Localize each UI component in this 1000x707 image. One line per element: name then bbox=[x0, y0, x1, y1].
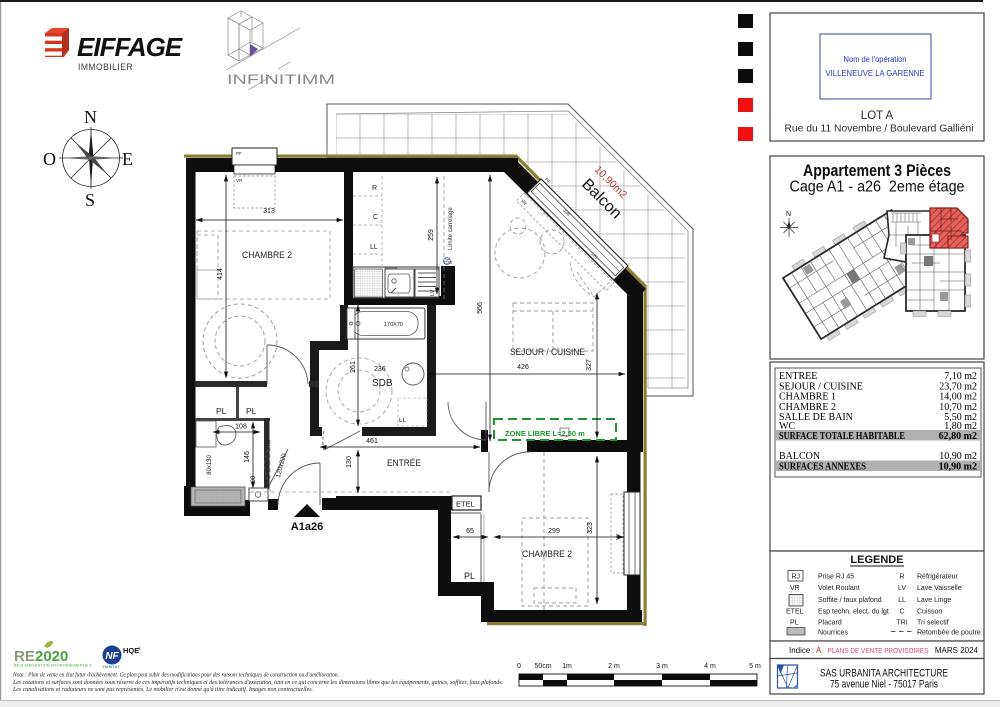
svg-text:HQE: HQE bbox=[123, 646, 139, 655]
svg-text:Cage A1 - a26 2eme étage: Cage A1 - a26 2eme étage bbox=[790, 179, 965, 196]
svg-text:Rue du 11 Novembre / Boulevard: Rue du 11 Novembre / Boulevard Galliéni bbox=[785, 124, 974, 135]
svg-text:Indice: Indice bbox=[789, 646, 811, 655]
svg-text:Nota : Plan de vente en état f: Nota : Plan de vente en état futur d'ach… bbox=[12, 672, 339, 679]
svg-text:LV: LV bbox=[898, 585, 906, 592]
svg-text:Placard: Placard bbox=[818, 620, 842, 627]
svg-text:130: 130 bbox=[346, 456, 353, 468]
svg-text:VILLENEUVE LA GARENNE: VILLENEUVE LA GARENNE bbox=[826, 68, 925, 78]
svg-text:Esp techn. elect. du lgt: Esp techn. elect. du lgt bbox=[818, 609, 889, 616]
svg-text:VR: VR bbox=[236, 178, 243, 183]
svg-text:Réfrigérateur: Réfrigérateur bbox=[917, 574, 959, 581]
svg-text:Cuisson: Cuisson bbox=[917, 609, 942, 616]
svg-text:MARS 2024: MARS 2024 bbox=[935, 646, 979, 655]
svg-text:LOT A: LOT A bbox=[861, 110, 894, 122]
svg-text:VR: VR bbox=[615, 533, 620, 540]
svg-text:Lave Linge: Lave Linge bbox=[917, 597, 951, 604]
svg-text:Volet Roulant: Volet Roulant bbox=[818, 585, 860, 592]
svg-text:10,90 m2: 10,90 m2 bbox=[939, 451, 977, 462]
svg-text:VR: VR bbox=[790, 585, 800, 592]
svg-text:LL: LL bbox=[399, 417, 407, 424]
svg-text:323: 323 bbox=[587, 522, 594, 534]
svg-text:426: 426 bbox=[517, 364, 529, 371]
svg-text:®: ® bbox=[138, 646, 141, 651]
svg-text:Prise RJ 45: Prise RJ 45 bbox=[818, 574, 854, 581]
svg-text:Retombée de poutre: Retombée de poutre bbox=[917, 630, 981, 637]
svg-text:R: R bbox=[372, 185, 377, 192]
svg-text:NF: NF bbox=[105, 651, 119, 662]
svg-text:C30: C30 bbox=[444, 260, 453, 265]
svg-text:Nom de l'opération: Nom de l'opération bbox=[844, 55, 907, 64]
svg-text:236: 236 bbox=[374, 366, 386, 373]
svg-text:Appartement 3 Pièces: Appartement 3 Pièces bbox=[803, 161, 951, 180]
svg-text:259: 259 bbox=[428, 229, 435, 241]
svg-text:LL: LL bbox=[898, 597, 906, 604]
svg-text:SURFACES ANNEXES: SURFACES ANNEXES bbox=[779, 462, 866, 473]
svg-text:E: E bbox=[122, 149, 133, 169]
svg-text:ETEL: ETEL bbox=[456, 500, 475, 509]
svg-text:: A: : A bbox=[812, 646, 822, 655]
svg-text:LL: LL bbox=[370, 244, 378, 251]
svg-text:RE: RE bbox=[14, 648, 35, 665]
svg-text:Tri selectif: Tri selectif bbox=[917, 620, 949, 627]
svg-text:0: 0 bbox=[517, 663, 521, 670]
svg-text:50cm: 50cm bbox=[534, 663, 551, 670]
svg-text:LV: LV bbox=[430, 289, 436, 296]
svg-text:Lave Vaisselle: Lave Vaisselle bbox=[917, 585, 962, 592]
svg-text:4 m: 4 m bbox=[704, 663, 716, 670]
svg-text:CHAMBRE 2: CHAMBRE 2 bbox=[522, 549, 572, 560]
svg-text:C: C bbox=[899, 609, 904, 616]
svg-text:LEGENDE: LEGENDE bbox=[850, 554, 903, 566]
svg-text:313: 313 bbox=[263, 208, 275, 215]
svg-text:327: 327 bbox=[586, 359, 593, 371]
svg-text:PL: PL bbox=[464, 571, 475, 581]
svg-text:PLANS DE VENTE PROVISOIRES: PLANS DE VENTE PROVISOIRES bbox=[828, 646, 929, 655]
svg-text:PL: PL bbox=[790, 620, 799, 627]
svg-text:2 m: 2 m bbox=[608, 663, 620, 670]
svg-text:2020: 2020 bbox=[35, 648, 68, 665]
svg-text:ENTRÉE: ENTRÉE bbox=[387, 458, 421, 469]
svg-text:Les cotations et surfaces sont: Les cotations et surfaces sont données s… bbox=[12, 679, 503, 686]
svg-text:IMMOBILIER: IMMOBILIER bbox=[78, 62, 133, 73]
svg-text:HABITAT: HABITAT bbox=[103, 665, 120, 669]
svg-text:BALCON: BALCON bbox=[779, 451, 820, 462]
svg-text:299: 299 bbox=[548, 528, 560, 535]
svg-text:Soffite / faux plafond: Soffite / faux plafond bbox=[818, 597, 882, 604]
svg-text:Nourrices: Nourrices bbox=[818, 630, 848, 637]
svg-text:SURFACE TOTALE HABITABLE: SURFACE TOTALE HABITABLE bbox=[779, 431, 905, 442]
svg-text:108: 108 bbox=[235, 424, 247, 431]
svg-text:O: O bbox=[43, 149, 56, 169]
svg-text:170X70: 170X70 bbox=[384, 322, 403, 328]
svg-text:S: S bbox=[85, 190, 95, 210]
svg-text:SEJOUR / CUISINE: SEJOUR / CUISINE bbox=[510, 347, 585, 358]
svg-text:261: 261 bbox=[350, 361, 357, 373]
svg-text:CHAMBRE 2: CHAMBRE 2 bbox=[242, 250, 292, 261]
svg-text:A1a26: A1a26 bbox=[291, 521, 323, 533]
svg-text:146: 146 bbox=[244, 451, 251, 463]
svg-text:C: C bbox=[373, 214, 378, 221]
svg-text:414: 414 bbox=[217, 268, 224, 280]
svg-text:65: 65 bbox=[466, 528, 474, 535]
svg-text:90: 90 bbox=[251, 475, 257, 482]
svg-text:Limite carrelage: Limite carrelage bbox=[448, 207, 454, 250]
svg-text:RJ: RJ bbox=[792, 574, 801, 581]
svg-text:80x130: 80x130 bbox=[207, 454, 213, 474]
svg-text:5 m: 5 m bbox=[749, 663, 761, 670]
svg-text:R: R bbox=[899, 574, 904, 581]
svg-text:N: N bbox=[84, 107, 97, 127]
svg-text:566: 566 bbox=[477, 302, 484, 314]
svg-text:ZONE LIBRE L=2,50 m: ZONE LIBRE L=2,50 m bbox=[505, 429, 585, 438]
svg-text:1m: 1m bbox=[562, 663, 572, 670]
svg-text:N: N bbox=[786, 211, 791, 218]
svg-text:Les canalisations et radiateur: Les canalisations et radiateurs ne sont … bbox=[12, 686, 313, 693]
svg-text:RÉGLEMENTATION ENVIRONNEMENTAL: RÉGLEMENTATION ENVIRONNEMENTALE bbox=[14, 663, 92, 668]
svg-text:PL: PL bbox=[246, 406, 257, 416]
svg-text:TRI: TRI bbox=[896, 620, 907, 627]
svg-text:PL: PL bbox=[216, 406, 227, 416]
svg-text:10,90 m2: 10,90 m2 bbox=[939, 462, 977, 473]
svg-text:SDB: SDB bbox=[372, 378, 393, 389]
svg-text:461: 461 bbox=[366, 438, 378, 445]
svg-text:EIFFAGE: EIFFAGE bbox=[77, 32, 183, 62]
svg-text:3 m: 3 m bbox=[656, 663, 668, 670]
svg-text:62,80 m2: 62,80 m2 bbox=[939, 431, 977, 442]
svg-text:PF: PF bbox=[236, 151, 242, 156]
svg-text:INFINITIMM: INFINITIMM bbox=[227, 71, 335, 87]
svg-text:75 avenue Niel - 75017 Paris: 75 avenue Niel - 75017 Paris bbox=[830, 679, 938, 691]
svg-text:ETEL: ETEL bbox=[786, 609, 804, 616]
